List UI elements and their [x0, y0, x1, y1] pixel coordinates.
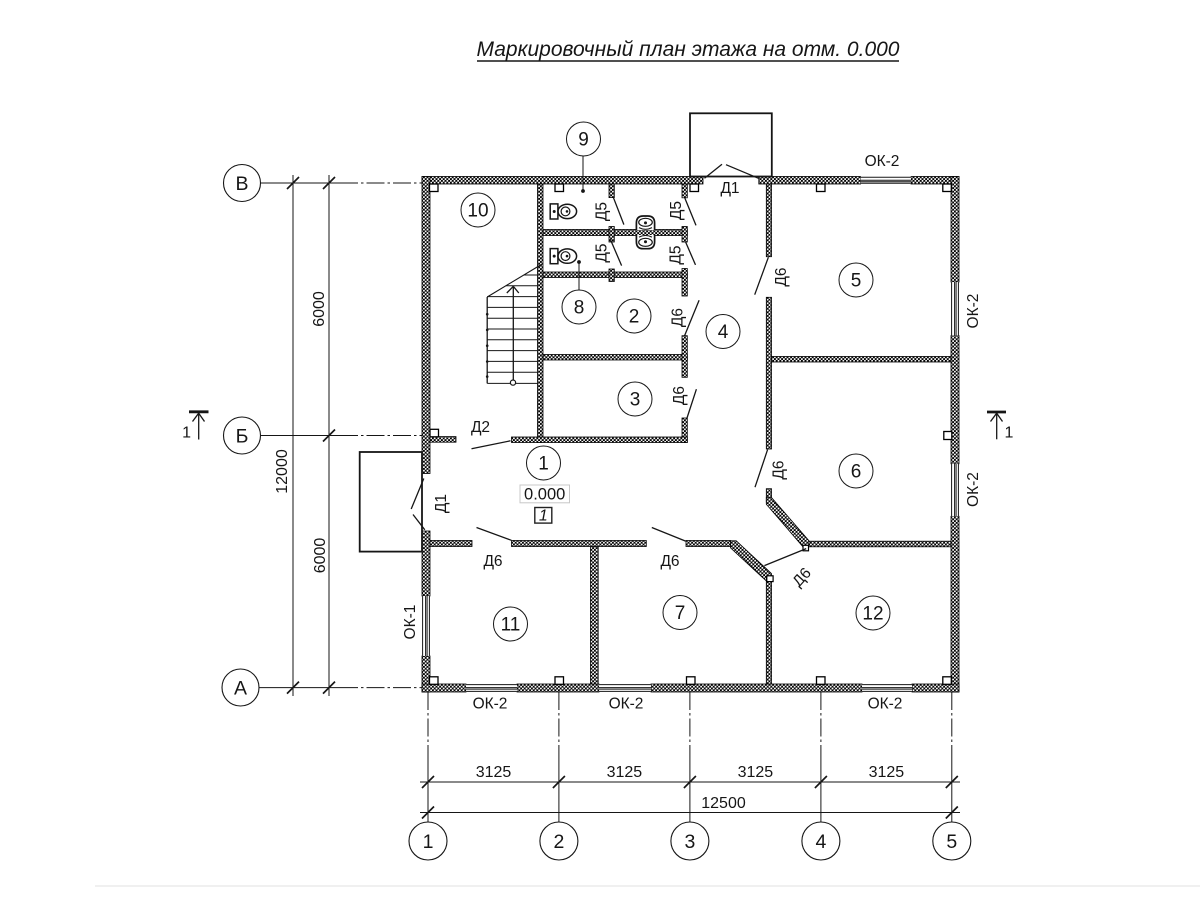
svg-text:Д1: Д1 — [720, 180, 739, 197]
svg-text:9: 9 — [578, 130, 589, 151]
svg-text:Д6: Д6 — [670, 308, 687, 327]
svg-text:Д6: Д6 — [660, 553, 679, 570]
svg-text:3125: 3125 — [869, 764, 905, 781]
svg-text:6: 6 — [851, 462, 862, 483]
svg-text:4: 4 — [815, 831, 826, 853]
svg-text:ОК-2: ОК-2 — [865, 153, 900, 170]
svg-text:А: А — [234, 678, 247, 700]
svg-text:6000: 6000 — [312, 538, 329, 574]
svg-text:11: 11 — [501, 615, 521, 636]
svg-text:Д1: Д1 — [433, 494, 450, 513]
svg-text:5: 5 — [946, 831, 957, 853]
svg-text:12000: 12000 — [274, 449, 291, 494]
svg-text:ОК-2: ОК-2 — [965, 294, 982, 329]
svg-text:Д5: Д5 — [594, 202, 611, 221]
svg-text:3: 3 — [630, 390, 641, 411]
svg-text:Д6: Д6 — [789, 565, 814, 591]
svg-text:В: В — [235, 173, 248, 195]
svg-text:1: 1 — [1005, 425, 1014, 442]
svg-text:Д5: Д5 — [594, 243, 611, 262]
svg-text:Маркировочный план этажа на от: Маркировочный план этажа на отм. 0.000 — [477, 38, 900, 61]
svg-text:ОК-2: ОК-2 — [609, 696, 644, 713]
svg-text:ОК-2: ОК-2 — [965, 472, 982, 507]
svg-text:ОК-2: ОК-2 — [868, 696, 903, 713]
svg-text:3125: 3125 — [607, 764, 643, 781]
svg-text:7: 7 — [675, 603, 686, 624]
svg-text:ОК-1: ОК-1 — [402, 605, 419, 640]
svg-text:Б: Б — [236, 426, 249, 448]
svg-text:12500: 12500 — [701, 795, 746, 812]
svg-text:1: 1 — [538, 454, 549, 475]
svg-text:Д6: Д6 — [773, 267, 790, 286]
svg-text:2: 2 — [629, 307, 640, 328]
svg-text:3125: 3125 — [738, 764, 774, 781]
svg-text:5: 5 — [851, 271, 862, 292]
svg-text:1: 1 — [182, 425, 191, 442]
svg-text:Д6: Д6 — [771, 460, 788, 479]
svg-text:2: 2 — [553, 831, 564, 853]
svg-text:1: 1 — [539, 508, 548, 525]
svg-text:Д6: Д6 — [483, 553, 502, 570]
svg-text:8: 8 — [574, 298, 585, 319]
svg-text:Д2: Д2 — [471, 419, 490, 436]
svg-text:Д5: Д5 — [668, 201, 685, 220]
svg-text:ОК-2: ОК-2 — [473, 696, 508, 713]
svg-text:Д6: Д6 — [671, 386, 688, 405]
svg-text:0.000: 0.000 — [524, 486, 565, 504]
svg-text:10: 10 — [467, 201, 488, 222]
svg-text:3: 3 — [684, 831, 695, 853]
svg-text:12: 12 — [862, 604, 883, 625]
svg-text:6000: 6000 — [311, 291, 328, 327]
svg-text:4: 4 — [718, 322, 729, 343]
svg-text:1: 1 — [423, 831, 434, 853]
svg-text:Д5: Д5 — [668, 245, 685, 264]
svg-text:3125: 3125 — [476, 764, 512, 781]
